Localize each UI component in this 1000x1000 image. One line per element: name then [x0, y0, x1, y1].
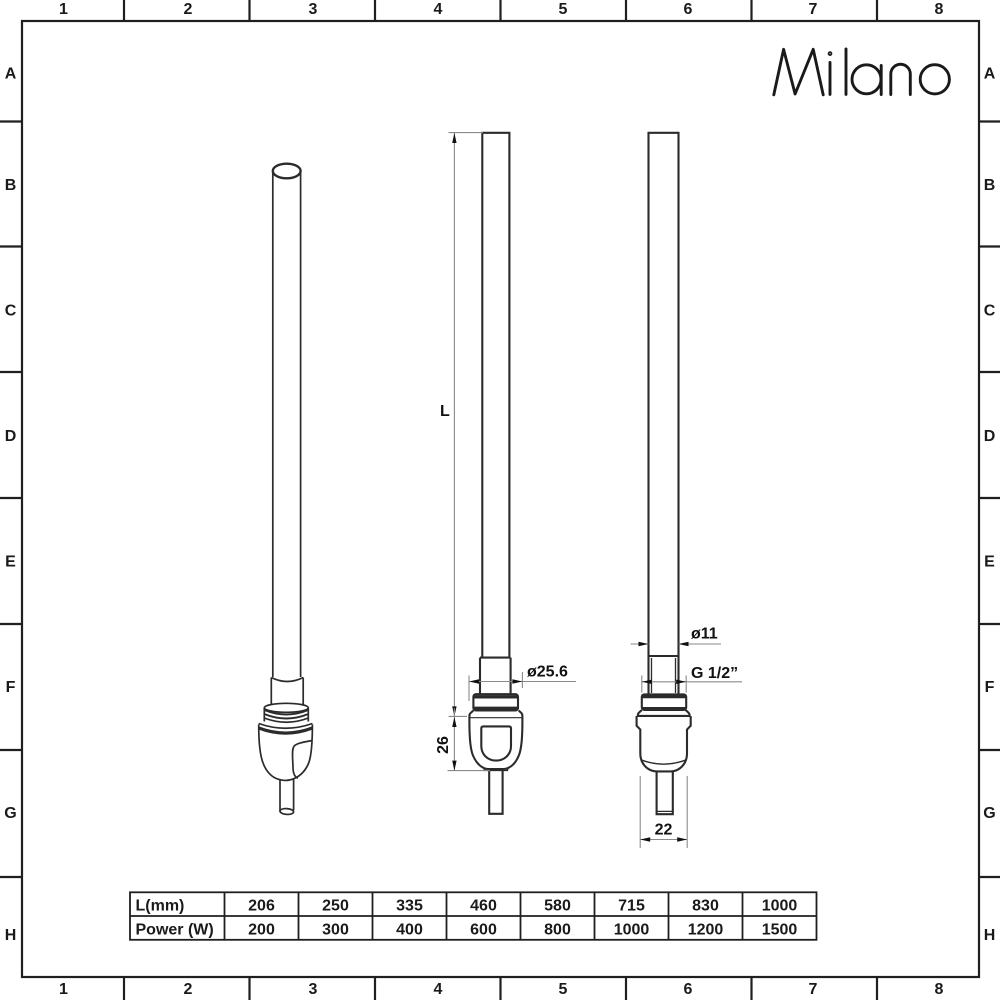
- svg-text:1000: 1000: [762, 898, 798, 915]
- svg-text:C: C: [5, 303, 17, 320]
- svg-text:400: 400: [396, 922, 423, 939]
- svg-text:A: A: [5, 66, 17, 83]
- svg-text:L: L: [440, 403, 450, 420]
- svg-text:830: 830: [692, 898, 719, 915]
- svg-text:L(mm): L(mm): [136, 898, 185, 915]
- svg-text:7: 7: [809, 1, 818, 18]
- svg-text:2: 2: [184, 981, 193, 998]
- svg-text:1: 1: [59, 1, 68, 18]
- svg-text:E: E: [984, 554, 995, 571]
- svg-text:Power (W): Power (W): [136, 922, 214, 939]
- svg-text:26: 26: [435, 736, 452, 754]
- svg-text:1000: 1000: [614, 922, 650, 939]
- svg-text:B: B: [5, 177, 17, 194]
- svg-text:206: 206: [248, 898, 275, 915]
- svg-text:800: 800: [544, 922, 571, 939]
- svg-text:2: 2: [184, 1, 193, 18]
- svg-text:A: A: [984, 66, 996, 83]
- svg-text:E: E: [5, 554, 16, 571]
- svg-text:G: G: [4, 805, 16, 822]
- svg-text:5: 5: [559, 981, 568, 998]
- svg-text:600: 600: [470, 922, 497, 939]
- svg-text:6: 6: [684, 1, 693, 18]
- svg-text:G: G: [983, 805, 995, 822]
- svg-text:335: 335: [396, 898, 423, 915]
- svg-text:4: 4: [434, 1, 443, 18]
- svg-text:200: 200: [248, 922, 275, 939]
- svg-text:F: F: [6, 679, 16, 696]
- svg-text:D: D: [984, 428, 996, 445]
- svg-text:7: 7: [809, 981, 818, 998]
- svg-text:C: C: [984, 303, 996, 320]
- svg-text:B: B: [984, 177, 996, 194]
- svg-text:F: F: [985, 679, 995, 696]
- svg-text:D: D: [5, 428, 17, 445]
- svg-text:460: 460: [470, 898, 497, 915]
- svg-text:H: H: [5, 927, 17, 944]
- svg-text:G 1/2”: G 1/2”: [691, 665, 738, 682]
- svg-text:8: 8: [935, 1, 944, 18]
- svg-text:H: H: [984, 927, 996, 944]
- svg-text:715: 715: [618, 898, 645, 915]
- svg-text:3: 3: [309, 1, 318, 18]
- svg-text:300: 300: [322, 922, 349, 939]
- svg-text:580: 580: [544, 898, 571, 915]
- svg-text:1: 1: [59, 981, 68, 998]
- svg-text:3: 3: [309, 981, 318, 998]
- svg-text:22: 22: [655, 822, 673, 839]
- svg-text:250: 250: [322, 898, 349, 915]
- svg-text:1200: 1200: [688, 922, 724, 939]
- svg-text:ø25.6: ø25.6: [527, 664, 568, 681]
- svg-text:4: 4: [434, 981, 443, 998]
- svg-text:5: 5: [559, 1, 568, 18]
- svg-text:1500: 1500: [762, 922, 798, 939]
- svg-text:6: 6: [684, 981, 693, 998]
- svg-text:8: 8: [935, 981, 944, 998]
- svg-text:ø11: ø11: [691, 626, 718, 643]
